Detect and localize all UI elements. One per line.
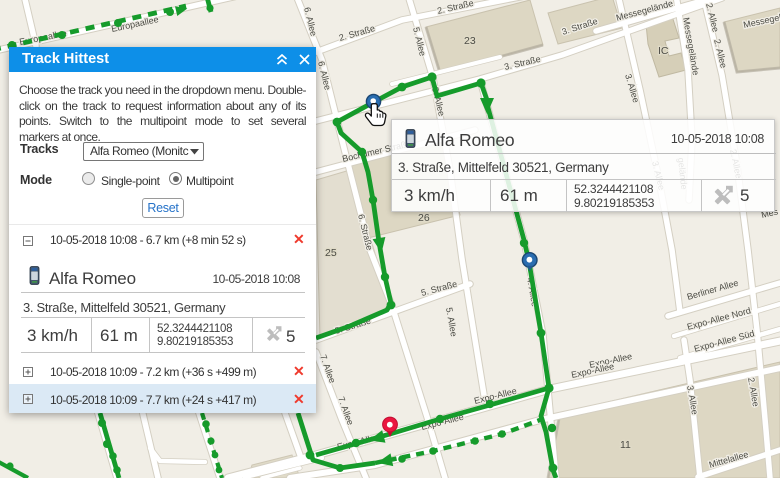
- svg-text:23: 23: [464, 35, 476, 47]
- svg-text:IC: IC: [658, 45, 669, 57]
- svg-text:25: 25: [325, 247, 337, 259]
- svg-text:26: 26: [418, 212, 430, 224]
- svg-text:11: 11: [620, 439, 631, 451]
